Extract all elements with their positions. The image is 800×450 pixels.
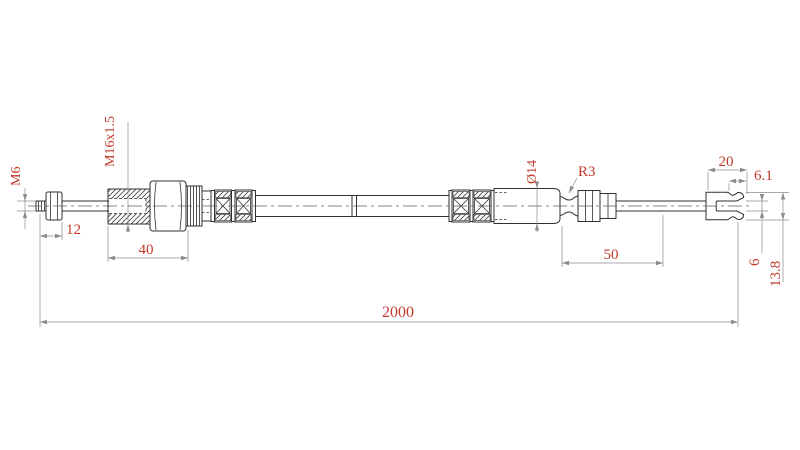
cable-drawing-canvas: M6 M16x1.5 Ø14 R3 12 40 50 20 6.1 6 13.8…: [0, 0, 800, 450]
dim-total-length: 2000: [382, 304, 414, 321]
dim-fork-slot-width: 6: [747, 258, 763, 266]
dim-sleeve-diameter: Ø14: [525, 160, 540, 184]
dim-fork-slot-depth: 6.1: [754, 168, 773, 184]
dim-left-tip-length: 12: [66, 222, 81, 238]
dim-mount-body-length: 40: [139, 242, 154, 258]
dim-groove-radius: R3: [578, 164, 596, 180]
dim-left-thread: M6: [9, 167, 24, 186]
dim-fork-length: 20: [719, 154, 734, 170]
mount-block: [108, 189, 150, 224]
technical-drawing: M6 M16x1.5 Ø14 R3 12 40 50 20 6.1 6 13.8…: [0, 0, 800, 450]
dim-mount-thread: M16x1.5: [103, 116, 118, 167]
dim-fork-height: 13.8: [768, 261, 784, 287]
dim-end-fitting-length: 50: [604, 247, 619, 263]
